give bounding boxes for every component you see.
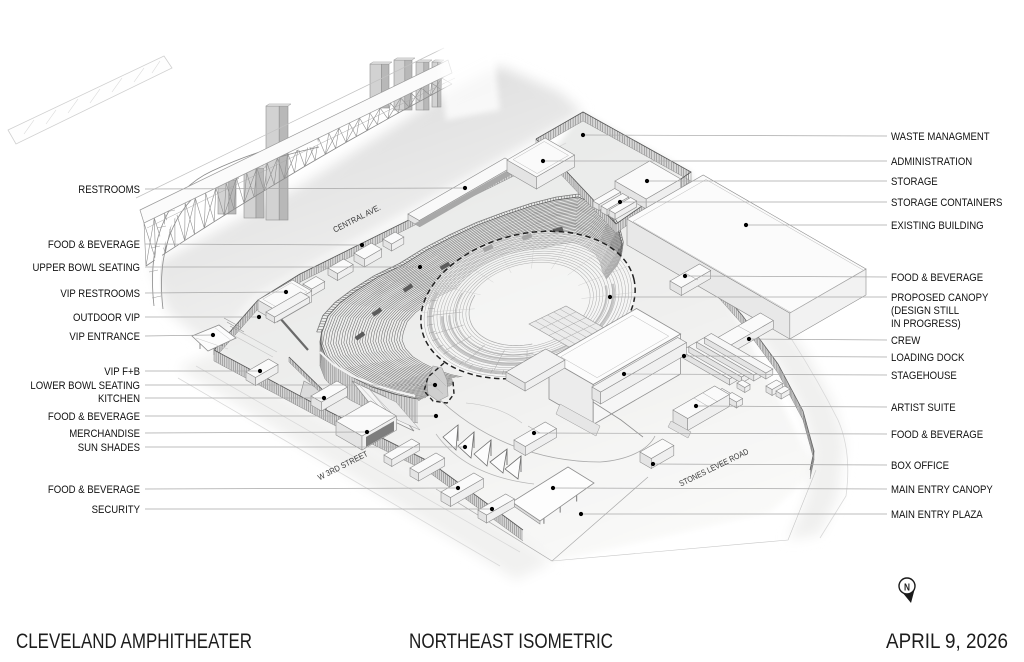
svg-text:CLEVELAND AMPHITHEATER: CLEVELAND AMPHITHEATER (16, 629, 252, 653)
svg-text:STAGEHOUSE: STAGEHOUSE (891, 370, 957, 382)
svg-text:BOX OFFICE: BOX OFFICE (891, 460, 949, 472)
svg-text:N: N (904, 582, 910, 594)
svg-text:APRIL 9, 2026: APRIL 9, 2026 (886, 629, 1008, 653)
svg-text:(DESIGN STILL: (DESIGN STILL (891, 305, 959, 317)
svg-text:SECURITY: SECURITY (92, 504, 141, 516)
svg-text:STORAGE: STORAGE (891, 176, 938, 188)
svg-text:MERCHANDISE: MERCHANDISE (69, 428, 140, 440)
svg-text:LOWER BOWL SEATING: LOWER BOWL SEATING (30, 380, 140, 392)
svg-text:FOOD & BEVERAGE: FOOD & BEVERAGE (48, 239, 140, 251)
svg-text:VIP F+B: VIP F+B (104, 366, 140, 378)
svg-text:OUTDOOR VIP: OUTDOOR VIP (73, 312, 140, 324)
svg-text:ARTIST SUITE: ARTIST SUITE (891, 402, 956, 414)
svg-text:KITCHEN: KITCHEN (98, 393, 140, 405)
svg-text:NORTHEAST ISOMETRIC: NORTHEAST ISOMETRIC (409, 629, 613, 653)
svg-text:WASTE MANAGMENT: WASTE MANAGMENT (891, 131, 990, 143)
svg-text:FOOD & BEVERAGE: FOOD & BEVERAGE (891, 429, 983, 441)
svg-text:VIP ENTRANCE: VIP ENTRANCE (69, 331, 140, 343)
svg-text:UPPER BOWL SEATING: UPPER BOWL SEATING (33, 262, 141, 274)
svg-text:MAIN ENTRY CANOPY: MAIN ENTRY CANOPY (891, 484, 993, 496)
svg-text:PROPOSED CANOPY: PROPOSED CANOPY (891, 292, 989, 304)
svg-text:VIP RESTROOMS: VIP RESTROOMS (60, 288, 140, 300)
svg-text:IN PROGRESS): IN PROGRESS) (891, 318, 961, 330)
svg-text:FOOD & BEVERAGE: FOOD & BEVERAGE (891, 272, 983, 284)
svg-text:SUN SHADES: SUN SHADES (78, 442, 140, 454)
svg-text:STORAGE CONTAINERS: STORAGE CONTAINERS (891, 197, 1002, 209)
svg-text:MAIN ENTRY PLAZA: MAIN ENTRY PLAZA (891, 509, 983, 521)
svg-text:LOADING DOCK: LOADING DOCK (891, 352, 965, 364)
svg-text:CREW: CREW (891, 335, 921, 347)
svg-text:RESTROOMS: RESTROOMS (78, 184, 140, 196)
svg-text:FOOD & BEVERAGE: FOOD & BEVERAGE (48, 411, 140, 423)
svg-text:EXISTING BUILDING: EXISTING BUILDING (891, 220, 984, 232)
svg-text:FOOD & BEVERAGE: FOOD & BEVERAGE (48, 484, 140, 496)
svg-text:ADMINISTRATION: ADMINISTRATION (891, 156, 972, 168)
